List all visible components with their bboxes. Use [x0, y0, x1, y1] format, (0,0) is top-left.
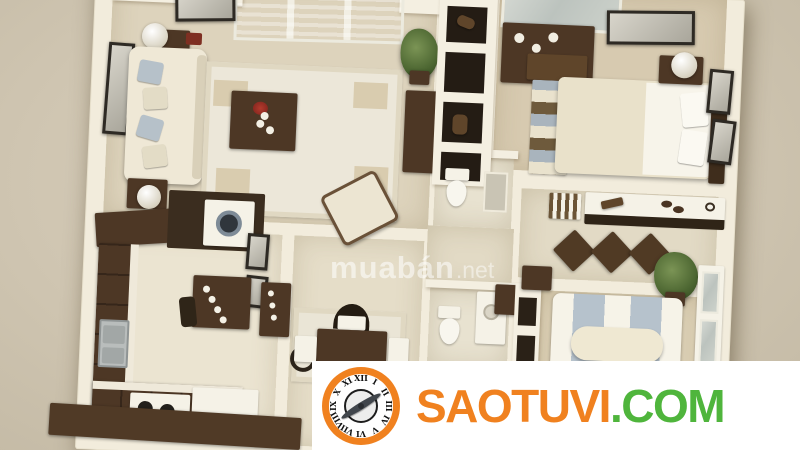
hall-vent-shelf [548, 192, 581, 219]
clock-numeral: IX [328, 401, 338, 411]
bathroom1-toilet-tank [445, 168, 470, 181]
logo-banner: XIIIIIIIIIVVVIVIIVIIIIXXXI SAOTUVI.COM [312, 361, 800, 450]
dining-chair-top-seat [337, 315, 366, 330]
bedroom2-window-pane-2 [698, 319, 718, 364]
watermark-brand: muabán [330, 250, 455, 286]
red-decor-box [186, 32, 203, 45]
sofa-pillow-4 [141, 144, 168, 169]
bathroom2-toilet-tank [438, 306, 461, 319]
living-window [233, 0, 404, 44]
living-art-top [175, 0, 235, 22]
bathroom1-shower [483, 172, 509, 213]
bedroom1-pillow-2 [677, 129, 708, 166]
sink-basin-1 [103, 325, 126, 344]
living-plant-pot [409, 70, 430, 85]
kitchen-wall-art-1 [245, 233, 270, 271]
clock-numeral: II [379, 386, 391, 397]
logo-brand: SAOTUVI [416, 383, 610, 429]
closet-cubby-2 [516, 335, 535, 364]
rug-patch-2 [353, 82, 388, 109]
sink-basin-2 [102, 347, 125, 364]
bedroom1-art-top [607, 10, 695, 45]
clock-numeral: III [384, 400, 394, 411]
watermark-suffix: .net [456, 257, 494, 284]
shelf-cubby-2 [444, 52, 486, 94]
bedroom2-bench [521, 265, 552, 290]
clock-numeral: V [370, 424, 380, 436]
bedroom1-art-right-1 [706, 69, 734, 115]
bedroom2-bolster [570, 326, 663, 364]
clock-numeral: VIII [328, 409, 345, 429]
dining-sideboard [259, 282, 291, 337]
clock-numeral: XI [340, 374, 354, 388]
clock-numeral: XII [354, 373, 368, 383]
clock-numeral: X [331, 386, 343, 396]
watermark: muabán.net [330, 250, 494, 286]
living-top-wall-right [399, 0, 444, 15]
closet-cubby-1 [518, 297, 537, 326]
clock-numeral: I [371, 376, 379, 387]
clock-numeral: VI [356, 429, 366, 439]
bedroom2-window-pane-1 [700, 271, 720, 314]
clock-pin [358, 403, 364, 409]
floor-plan-scene: muabán.net XIIIIIIIIIVVVIVIIVIIIIXXXI SA… [0, 0, 800, 450]
dining-chair-left [294, 336, 317, 363]
sofa-pillow-2 [143, 86, 168, 109]
kitchen-desk-chair [179, 296, 198, 327]
bedroom1-pillow-1 [680, 92, 709, 128]
clock-numeral: IV [378, 413, 392, 427]
logo-text: SAOTUVI.COM [416, 383, 724, 429]
sofa-pillow-1 [137, 59, 165, 85]
shelf-decor-2 [452, 114, 468, 135]
clock-icon: XIIIIIIIIIVVVIVIIVIIIIXXXI [322, 367, 400, 445]
logo-suffix: .COM [610, 383, 724, 429]
